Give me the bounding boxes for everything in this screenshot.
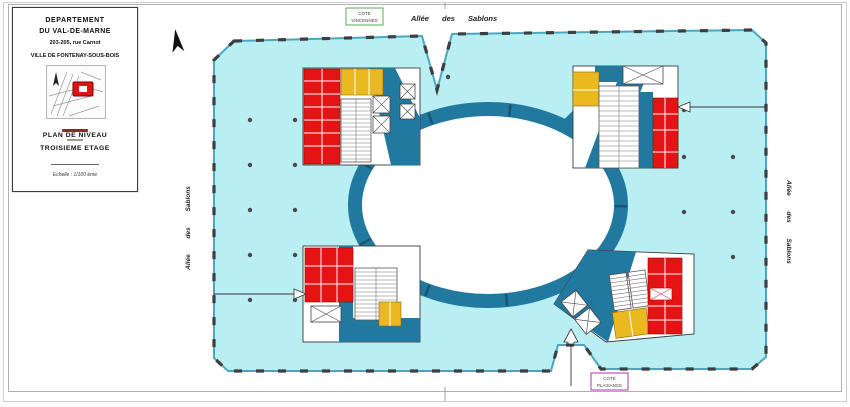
location-map-thumbnail [46, 65, 106, 119]
marker-cote-plaisance: COTE PLAISANCE [591, 373, 628, 390]
title-divider [51, 164, 99, 165]
elevator [623, 66, 663, 84]
title-department-line1: DEPARTEMENT [13, 17, 137, 24]
plan-title-line1: PLAN DE NIVEAU [13, 132, 137, 139]
yellow-rooms [612, 308, 649, 338]
core-top-left [303, 68, 420, 165]
map-site-marker-center [79, 86, 87, 92]
red-rooms [305, 248, 353, 302]
marker-vincennes-line2: VINCENNES [351, 18, 377, 23]
core-top-right [573, 66, 678, 168]
title-department-line2: DU VAL-DE-MARNE [13, 28, 137, 35]
yellow-room [573, 72, 599, 106]
core-bottom-left [303, 246, 420, 342]
title-city: VILLE DE FONTENAY-SOUS-BOIS [13, 53, 137, 59]
map-north-arrow-icon [53, 72, 59, 86]
plan-title-line2: TROISIEME ETAGE [13, 145, 137, 152]
marker-plaisance-line1: COTE [603, 376, 616, 381]
marker-cote-vincennes: COTE VINCENNES [346, 8, 383, 25]
street-label-top: Allée des Sablons [410, 14, 497, 23]
marker-vincennes-line1: COTE [358, 11, 371, 16]
elevator [311, 306, 341, 322]
street-label-right: Allée des Sablons [785, 179, 792, 264]
title-address: 203-205, rue Carnot [13, 40, 137, 46]
title-block: DEPARTEMENT DU VAL-DE-MARNE 203-205, rue… [12, 7, 138, 192]
street-label-left: Allée des Sablons [185, 186, 192, 271]
yellow-rooms [341, 69, 383, 95]
marker-plaisance-line2: PLAISANCE [597, 383, 622, 388]
drawing-sheet: Allée des Sablons Allée des Sablons Allé… [0, 0, 850, 407]
scale-label: Echelle : 1/100 ème [13, 172, 137, 178]
